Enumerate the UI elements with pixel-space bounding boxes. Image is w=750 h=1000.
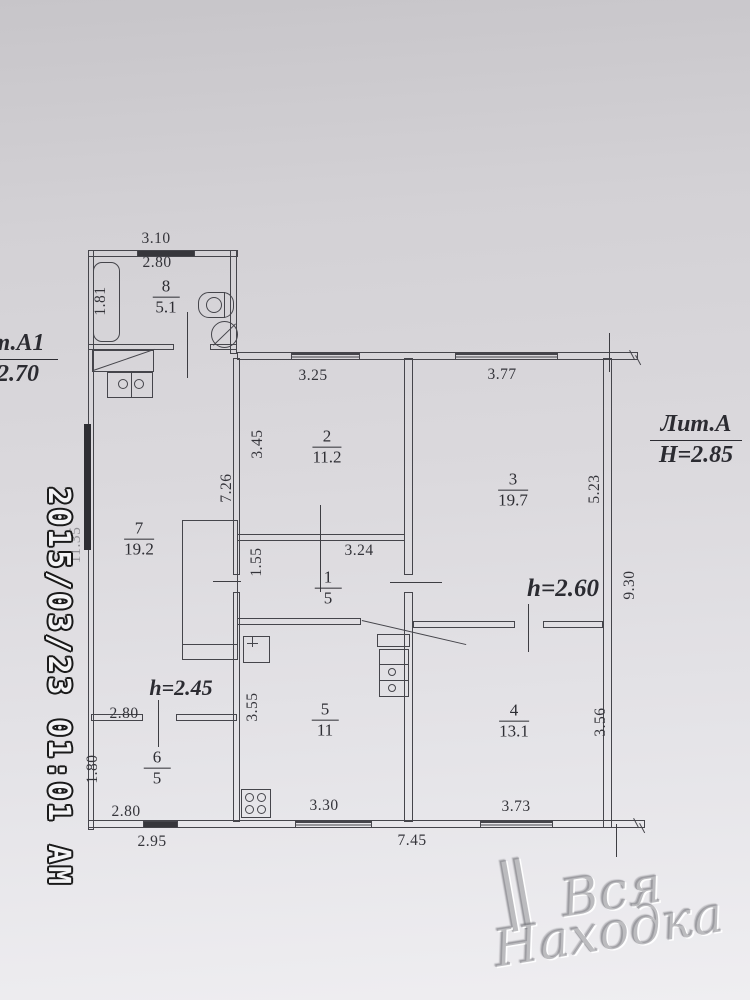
furnace-mid-divider-2	[379, 680, 409, 681]
room-4-number: 4	[499, 702, 529, 722]
wall-right-outer	[603, 358, 612, 828]
furnace-hall-knob-1	[118, 379, 128, 389]
furnace-hall-divider	[131, 372, 132, 398]
dim-5-23: 5.23	[586, 474, 604, 503]
room-label-5: 5 11	[312, 701, 339, 740]
dim-3-73: 3.73	[501, 798, 530, 816]
lit-a-title: Лит.А	[650, 411, 742, 441]
window-room6	[143, 821, 178, 828]
wall-room3-room4-a	[413, 621, 515, 628]
dim-3-55: 3.55	[244, 692, 262, 721]
furnace-hall-knob-2	[134, 379, 144, 389]
door-tick-room7-room6	[158, 700, 159, 747]
window-room3	[455, 353, 558, 360]
room-2-number: 2	[312, 428, 341, 448]
room-2-area: 11.2	[312, 448, 341, 467]
dim-3-25: 3.25	[298, 367, 327, 385]
height-label-main: h=2.60	[527, 575, 599, 603]
extension-line-top-right	[609, 333, 610, 372]
room-6-number: 6	[144, 749, 171, 769]
kitchen-tap-v	[252, 637, 253, 647]
lit-a-height: Н=2.85	[650, 441, 742, 470]
dim-3-10: 3.10	[141, 230, 170, 248]
window-room5	[295, 821, 372, 828]
room-label-4: 4 13.1	[499, 702, 529, 741]
lit-a1-label: т.А1 2.70	[0, 330, 58, 388]
toilet-bowl-icon	[206, 297, 222, 313]
furnace-hall-burner-box	[107, 372, 153, 398]
room-1-area: 5	[315, 589, 342, 608]
wall-room7-room6-b	[176, 714, 237, 721]
wall-room3-room4-b	[543, 621, 603, 628]
door-tick-room3-room4	[528, 604, 529, 652]
furnace-mid-knob-2	[388, 684, 396, 692]
wall-left-dark-segment	[84, 424, 91, 550]
height-label-porch: h=2.45	[149, 675, 212, 701]
room-7-number: 7	[124, 520, 154, 540]
window-room4	[480, 821, 553, 828]
dim-2-80-top: 2.80	[142, 254, 171, 272]
room-7-area: 19.2	[124, 540, 154, 559]
room-label-6: 6 5	[144, 749, 171, 788]
dim-2-95: 2.95	[137, 833, 166, 851]
toilet-divider	[224, 292, 225, 318]
furnace-mid-knob-1	[388, 668, 396, 676]
lit-a1-height: 2.70	[0, 360, 58, 389]
room-label-1: 1 5	[315, 569, 342, 608]
kitchen-sink	[243, 636, 270, 663]
room-5-number: 5	[312, 701, 339, 721]
room-label-2: 2 11.2	[312, 428, 341, 467]
dim-1-80: 1.80	[84, 754, 102, 783]
room-3-area: 19.7	[498, 491, 528, 510]
dim-7-26: 7.26	[218, 473, 236, 502]
floor-plan-photo: 3.10 2.80 1.81 3.25 3.45 3.77 5.23 9.30 …	[0, 0, 750, 1000]
dim-3-24: 3.24	[344, 542, 373, 560]
wall-divider-mid-b	[404, 592, 413, 822]
dim-2-80-room6-top: 2.80	[109, 705, 138, 723]
dim-3-30: 3.30	[309, 797, 338, 815]
room-label-3: 3 19.7	[498, 471, 528, 510]
room-8-number: 8	[153, 278, 180, 298]
lit-a1-title: т.А1	[0, 330, 58, 360]
room-6-area: 5	[144, 769, 171, 788]
furnace-mid-divider-1	[379, 664, 409, 665]
stove-burner-3	[245, 805, 254, 814]
room-5-area: 11	[312, 721, 339, 740]
extension-line-bottom-right	[616, 824, 617, 857]
dim-1-55: 1.55	[248, 547, 266, 576]
wall-divider-mid-a	[404, 358, 413, 575]
door-tick-room1-room3	[390, 582, 442, 583]
dim-1-81: 1.81	[92, 286, 110, 315]
stove-burner-1	[245, 793, 254, 802]
closet	[182, 520, 238, 660]
dim-3-56: 3.56	[592, 707, 610, 736]
room-3-number: 3	[498, 471, 528, 491]
lit-a-label: Лит.А Н=2.85	[650, 411, 742, 469]
room-label-7: 7 19.2	[124, 520, 154, 559]
room-4-area: 13.1	[499, 722, 529, 741]
furnace-mid-top	[377, 634, 410, 647]
room-1-number: 1	[315, 569, 342, 589]
dim-3-77: 3.77	[487, 366, 516, 384]
dim-7-45: 7.45	[397, 832, 426, 850]
room-label-8: 8 5.1	[153, 278, 180, 317]
window-room2	[291, 353, 360, 360]
wall-room1-room5	[237, 618, 361, 625]
dim-2-80-room6-bottom: 2.80	[111, 803, 140, 821]
dim-3-45: 3.45	[249, 429, 267, 458]
dim-9-30: 9.30	[621, 570, 639, 599]
room-8-area: 5.1	[153, 298, 180, 317]
stove-burner-4	[257, 805, 266, 814]
timestamp-watermark: 2015/03/23 01:01 AM	[41, 487, 76, 907]
stove-burner-2	[257, 793, 266, 802]
closet-shelf-line	[182, 644, 238, 645]
door-tick-room8	[187, 312, 188, 378]
